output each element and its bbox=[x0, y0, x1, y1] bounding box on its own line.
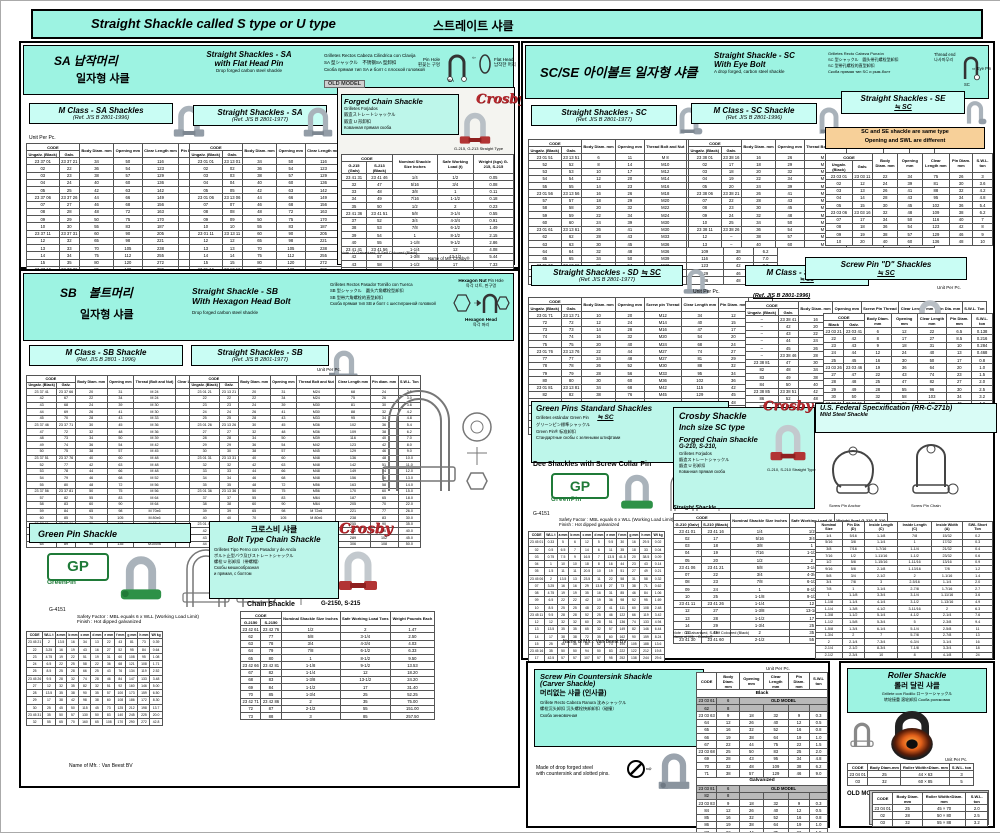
cell: 22 bbox=[220, 395, 238, 402]
cell: 85 bbox=[261, 691, 281, 698]
cell: 72 bbox=[241, 705, 261, 712]
cell: 55 bbox=[75, 495, 107, 502]
cell: 40 bbox=[238, 455, 270, 462]
cell: 67 bbox=[241, 669, 261, 676]
cell: 82 bbox=[261, 669, 281, 676]
cell: 28 bbox=[238, 415, 270, 422]
cell: 12 bbox=[788, 719, 809, 726]
cell: 92 bbox=[115, 682, 126, 689]
usfed-table-wrap: Nominal SizePin Dia (D)Inside Length (C)… bbox=[815, 521, 993, 659]
scse-title: SC/SE 아이볼트 일자형 샤클 bbox=[540, 62, 698, 81]
cell: 0.8 bbox=[972, 357, 993, 364]
cell: 11 bbox=[557, 568, 569, 575]
sb-gp-table-wrap: CODEWLL ta mmb mmc mmd mme mmf mmg mmh m… bbox=[26, 631, 163, 726]
cell: 17 bbox=[721, 161, 741, 168]
cell: 22 bbox=[581, 212, 615, 219]
cell: 109 bbox=[922, 209, 949, 216]
cell: 77 bbox=[261, 633, 281, 640]
cell: 03 bbox=[27, 172, 60, 179]
old-model-tag: OLD MODEL bbox=[324, 80, 365, 88]
cell bbox=[740, 792, 764, 799]
cell: 18 bbox=[963, 645, 993, 652]
cell: 22 bbox=[581, 348, 615, 355]
cell: 95 bbox=[336, 415, 370, 422]
cell: 3/8 bbox=[730, 542, 789, 549]
cell: 5/8 bbox=[281, 633, 340, 640]
cell: 12 bbox=[891, 328, 917, 335]
cell: 9-1/2 bbox=[340, 662, 391, 669]
col-header: Opening mm bbox=[114, 144, 142, 158]
cell: 14 bbox=[222, 252, 242, 259]
col-subheader: Galv. bbox=[852, 161, 872, 173]
cell: 52 bbox=[115, 646, 126, 653]
cell: 31 bbox=[605, 590, 617, 597]
cell: 23 13 51 bbox=[561, 154, 581, 161]
cell: 02 bbox=[222, 165, 242, 172]
cell: 20 bbox=[616, 312, 644, 319]
cell: 40 bbox=[723, 255, 753, 262]
col-header: CODE bbox=[746, 302, 799, 309]
cell: 212 bbox=[126, 704, 138, 711]
cell: 43 bbox=[844, 342, 864, 349]
sa-section: SA 납작머리 일자형 샤클 Straight Shackles - SA wi… bbox=[19, 41, 520, 269]
cell: 43 bbox=[79, 646, 91, 653]
cell: 4.94 bbox=[652, 619, 664, 626]
cell: M24 bbox=[644, 341, 681, 348]
cell: 60 bbox=[270, 455, 297, 462]
cell: 23 41 21 bbox=[701, 564, 730, 571]
cell: M48 bbox=[297, 462, 336, 469]
cell: 16 bbox=[788, 814, 809, 821]
crosby-old: CODENominal Shackle Size InchesSafe Work… bbox=[341, 154, 514, 283]
cell: 45 bbox=[270, 422, 297, 429]
cell: 74 bbox=[917, 371, 947, 378]
col-subheader: Ungalv. (Black) bbox=[529, 147, 562, 154]
countersink-photo-icon bbox=[656, 747, 692, 793]
cell: M 45 bbox=[134, 448, 176, 455]
cell: 07 bbox=[674, 571, 702, 578]
crosby-old: CODENominal Shackle Size InchesSafe Work… bbox=[341, 154, 514, 283]
cell: 17 bbox=[545, 633, 557, 640]
cell: 53 bbox=[27, 468, 57, 475]
cell: 05 bbox=[222, 187, 242, 194]
cell: 13 bbox=[963, 632, 993, 639]
scse-sub1: Straight Shackle - SC bbox=[714, 51, 829, 60]
cell: 17 bbox=[947, 357, 972, 364]
cell: 75 bbox=[277, 216, 305, 223]
col-header: Clear Length mm bbox=[922, 154, 949, 173]
cell: 11 bbox=[593, 575, 605, 582]
cell: 16 bbox=[605, 561, 617, 568]
se-title: Straight Shackles - SE bbox=[844, 94, 962, 103]
cell: 35 bbox=[557, 626, 569, 633]
cell: 82 bbox=[628, 626, 640, 633]
sb-dimension-diagram bbox=[367, 381, 497, 501]
col-header: Body Diam. mm bbox=[242, 144, 276, 158]
cell: 1-1/2 bbox=[281, 684, 340, 691]
cell: 82 bbox=[561, 391, 581, 398]
cell: 66 bbox=[628, 611, 640, 618]
cell: 5.44 bbox=[473, 253, 513, 260]
cell: 3 bbox=[281, 713, 340, 720]
cell: 4.75 bbox=[43, 653, 55, 660]
sa-unit-label: Unit Per Pc. bbox=[29, 135, 56, 141]
cell: 40 bbox=[75, 455, 107, 462]
cell: 2 bbox=[340, 626, 391, 633]
cell: 48 bbox=[740, 763, 764, 770]
cell: 46 bbox=[950, 231, 973, 238]
cell: 205 bbox=[336, 501, 370, 508]
cell: 35.0 bbox=[398, 521, 421, 528]
cell: 18 bbox=[740, 712, 764, 719]
cell: 12 bbox=[581, 539, 593, 546]
bolt-lang-ru2: и прямая, с болтом bbox=[214, 571, 334, 577]
cell: 1-3/4 bbox=[281, 691, 340, 698]
roller-old-box: CODEBody Diam. mmRoller Width×Diam. mmS.… bbox=[869, 790, 989, 825]
sa-kr1: 납작머리 bbox=[74, 54, 118, 68]
cell: 29 bbox=[776, 161, 804, 168]
cell: 23 03 16 bbox=[852, 209, 872, 216]
cell: 39 bbox=[616, 219, 644, 226]
cell: 6.50 bbox=[150, 690, 162, 697]
cell: 46 bbox=[628, 590, 640, 597]
cell: 38 bbox=[950, 209, 973, 216]
cell: 0.3 bbox=[810, 800, 828, 807]
cell: 34 bbox=[107, 395, 134, 402]
cell: 13-1/2 bbox=[340, 676, 391, 683]
cell: 1-1/4 bbox=[730, 600, 789, 607]
cell: 0.18 bbox=[473, 195, 513, 202]
cell: 36 bbox=[242, 165, 276, 172]
cell: OLD MODEL bbox=[740, 697, 828, 704]
cell: 15 bbox=[27, 259, 60, 266]
cell: 36 bbox=[741, 226, 775, 233]
cell: 50 bbox=[778, 381, 798, 388]
col-header: Screw pin Thread bbox=[644, 298, 681, 312]
col-header: WLL t bbox=[545, 532, 557, 539]
cell: 23 41 11 bbox=[674, 600, 702, 607]
cell: 29 bbox=[27, 697, 43, 704]
cell: 23 bbox=[947, 371, 972, 378]
cell: 60 bbox=[27, 515, 57, 522]
cell: 23 41 06 bbox=[674, 564, 702, 571]
sd-title: Straight Shackles - SD ≒ SC bbox=[534, 268, 680, 277]
cell: 1-5/8 bbox=[816, 626, 843, 633]
cell: 17/32 bbox=[931, 539, 962, 546]
cell: 3/8 bbox=[392, 188, 437, 195]
col-header: CODE bbox=[27, 376, 76, 383]
cell: 72 bbox=[561, 319, 581, 326]
cell: 13 bbox=[529, 626, 545, 633]
cell: 7.6 bbox=[963, 612, 993, 619]
cell: 34 bbox=[616, 212, 644, 219]
sb-mclass-ref: (Ref. JIS B 2801 - 1996) bbox=[32, 357, 180, 363]
cell: 116 bbox=[142, 158, 179, 165]
cell: 159 bbox=[138, 690, 150, 697]
cell: 05 bbox=[529, 568, 545, 575]
mclass-sd-ref: (Ref. JIS B 2801-1996) bbox=[753, 293, 810, 299]
cell: 4-1/4 bbox=[864, 599, 897, 606]
cell: 42 bbox=[67, 697, 79, 704]
col-header: CODE bbox=[824, 314, 865, 321]
cell: 57 bbox=[103, 690, 115, 697]
cell: 81 bbox=[126, 639, 138, 646]
cell: 6.2 bbox=[973, 209, 993, 216]
cell: 27 bbox=[701, 607, 730, 614]
cell: 0.02 bbox=[652, 539, 664, 546]
cell: 2-7/8 bbox=[898, 586, 931, 593]
cell: 04 bbox=[190, 179, 223, 186]
cell: 1.0 bbox=[810, 821, 828, 828]
cell: 120 bbox=[114, 259, 142, 266]
col-header: Clear Length mm bbox=[336, 376, 370, 389]
col-header: e mm bbox=[103, 632, 115, 639]
sb-sub1: Straight Shackle - SB bbox=[192, 286, 327, 296]
cell: 1-13/16 bbox=[931, 599, 962, 606]
scse-lang-ru: Скоба прямая тип SC и рым-болт bbox=[828, 69, 938, 75]
cell: 07 bbox=[190, 201, 223, 208]
cell: 57 bbox=[107, 448, 134, 455]
cell: 82 bbox=[746, 366, 779, 373]
cell: 41 bbox=[605, 604, 617, 611]
cell: 69 bbox=[57, 409, 75, 416]
cell: 23 01 61 bbox=[529, 226, 562, 233]
cell: 68 bbox=[277, 201, 305, 208]
cell: 23 13 71 bbox=[561, 312, 581, 319]
col-header: g mm bbox=[628, 532, 640, 539]
cell: 1 bbox=[437, 188, 473, 195]
cell: 1/4 bbox=[816, 533, 843, 540]
cell: 60 bbox=[277, 179, 305, 186]
cell: M 8 bbox=[644, 154, 686, 161]
cell: 44 bbox=[616, 348, 644, 355]
cell: 13.5 bbox=[55, 639, 67, 646]
cell: 77 bbox=[370, 508, 398, 515]
spd-label: Screw Pin "D" Shackles ≒ SC bbox=[805, 257, 967, 280]
cell: 12 bbox=[545, 619, 557, 626]
cell: 73 bbox=[57, 435, 75, 442]
cell: 72 bbox=[107, 482, 134, 489]
cell: 09 bbox=[826, 231, 853, 238]
col-subheader: Ungalv. (Black) bbox=[190, 382, 220, 389]
cell: 95 bbox=[138, 653, 150, 660]
cell: 30 bbox=[59, 223, 79, 230]
cell: 82 bbox=[697, 792, 717, 799]
cell: M22 bbox=[644, 204, 686, 211]
cell: 8.30 bbox=[150, 697, 162, 704]
cell: 1-1/4 bbox=[281, 669, 340, 676]
cell: 5-3/4 bbox=[864, 619, 897, 626]
cell: 36 bbox=[75, 442, 107, 449]
cell: M16 bbox=[644, 326, 681, 333]
cell: 16 bbox=[717, 814, 740, 821]
cell: 1-5/8 bbox=[842, 619, 864, 626]
col-header: Pin Diam. mm bbox=[788, 673, 809, 690]
cell: 22 bbox=[569, 597, 581, 604]
cell: 39 bbox=[270, 402, 297, 409]
cell: 5/16 bbox=[842, 533, 864, 540]
cell: 0.64 bbox=[150, 646, 162, 653]
cell: 83 bbox=[277, 223, 305, 230]
cell: 1.47 bbox=[391, 626, 435, 633]
cell: 35 bbox=[67, 682, 79, 689]
cell: 187 bbox=[336, 495, 370, 502]
cell: 1.5 bbox=[810, 741, 828, 748]
cell: 5-1/4 bbox=[898, 626, 931, 633]
usfed-sub: Mild Steel Shackle bbox=[820, 412, 992, 418]
cell: 1-1/16 bbox=[931, 573, 962, 580]
cell: 98 bbox=[270, 508, 297, 515]
crosby-note: Note : G-Galvanized, S-Self Coloured (Bl… bbox=[341, 251, 417, 255]
cell: 03 bbox=[190, 172, 223, 179]
cell: 41 bbox=[616, 226, 644, 233]
cell: 25 bbox=[27, 668, 43, 675]
roller-table-old-wrap: CODEBody Diam. mmRoller Width×Diam. mmS.… bbox=[872, 792, 988, 827]
gp-logo: GP bbox=[551, 473, 609, 499]
cell: 38 bbox=[788, 763, 809, 770]
cell: 08 bbox=[27, 208, 60, 215]
cell: 24 bbox=[190, 409, 220, 416]
sb-gp-logo-text: GreenPin bbox=[47, 579, 76, 586]
col-subheader: Ungalv. (Black) bbox=[689, 147, 722, 154]
cell: 133 bbox=[138, 675, 150, 682]
cell: 22 bbox=[557, 597, 569, 604]
cell: 6.5 bbox=[947, 328, 972, 335]
cell: 83 bbox=[57, 501, 75, 508]
cell: 16 bbox=[67, 639, 79, 646]
cell: 4.03 bbox=[391, 640, 435, 647]
cell: 55 bbox=[242, 223, 276, 230]
cell: 72 bbox=[270, 482, 297, 489]
col-header: Nominal Shackle Size Inches bbox=[730, 514, 789, 528]
cell: 02 bbox=[674, 535, 702, 542]
scse-eyepin-label: ⇨ Eye Pin bbox=[972, 66, 994, 71]
cell: 42 bbox=[242, 187, 276, 194]
cell: 75 bbox=[270, 488, 297, 495]
cell: 1-3/8 bbox=[281, 676, 340, 683]
cell: 39 bbox=[107, 402, 134, 409]
cell: 83 bbox=[103, 711, 115, 718]
cell: 58 bbox=[617, 575, 628, 582]
cell: 205 bbox=[142, 230, 179, 237]
cell: 20 bbox=[721, 183, 741, 190]
cell: 10 bbox=[581, 312, 615, 319]
cell: 0.8 bbox=[810, 814, 828, 821]
cell: 2.52 bbox=[150, 668, 162, 675]
cell: 10 bbox=[593, 568, 605, 575]
cell: 38 bbox=[91, 697, 103, 704]
cell: 1.08 bbox=[150, 653, 162, 660]
countersink-table-wrap: CODEBody Diam. mmOpening mmClear Length … bbox=[696, 672, 828, 833]
cell: 79 bbox=[261, 647, 281, 654]
cell: M12 bbox=[644, 168, 686, 175]
cell: 22 bbox=[873, 173, 898, 180]
cell: 74 bbox=[561, 333, 581, 340]
cell: 63 bbox=[107, 462, 134, 469]
cell: 2-7/8 bbox=[931, 632, 962, 639]
cell: 25 bbox=[701, 593, 730, 600]
cell: 1-1/8 bbox=[392, 239, 437, 246]
col-header: Pin Diam. mm bbox=[718, 298, 748, 312]
bolt-title: Bolt Type Chain Shackle bbox=[214, 535, 334, 544]
cell: 34 bbox=[220, 475, 238, 482]
bolt-crosby-logo: Crosby bbox=[339, 521, 393, 537]
cell: 28 bbox=[220, 435, 238, 442]
cell: 27 bbox=[605, 582, 617, 589]
cell: 80 bbox=[261, 655, 281, 662]
col-header: b mm bbox=[67, 632, 79, 639]
cell: 41 bbox=[107, 409, 134, 416]
cell: 42.8 bbox=[150, 719, 162, 726]
cell: 16 bbox=[741, 154, 775, 161]
cell: 24 bbox=[220, 409, 238, 416]
se-label: Straight Shackles - SE ≒ SC bbox=[841, 91, 965, 114]
cell: 82 bbox=[917, 378, 947, 385]
sb-sub3: Drop forged carbon steel shackle bbox=[192, 310, 327, 315]
col-subheader: Galv. bbox=[721, 147, 741, 154]
cell: 2 bbox=[898, 573, 931, 580]
cell: 49 bbox=[366, 195, 392, 202]
cell: 100 bbox=[115, 690, 126, 697]
cell: 3-1/4 bbox=[437, 210, 473, 217]
cell: 3.42 bbox=[652, 611, 664, 618]
cell: 7/8 bbox=[730, 578, 789, 585]
cell: 133 bbox=[640, 619, 652, 626]
cell: 142 bbox=[142, 187, 179, 194]
col-header: S.W.L. ton bbox=[950, 764, 973, 771]
usfed-anchor-caption: Screw Pin Anchor bbox=[829, 503, 861, 508]
cell: 96 bbox=[917, 386, 947, 393]
crosby210-notes: Note : G-Galvanised, S-Self Coloured (Bl… bbox=[673, 631, 749, 639]
countersink-arrow: ⇨ bbox=[646, 765, 652, 773]
cell: 8 bbox=[717, 705, 740, 712]
cell: 22.0 bbox=[398, 501, 421, 508]
col-header: CODE bbox=[689, 140, 742, 147]
cell: 70 bbox=[75, 515, 107, 522]
cell: 30 bbox=[891, 357, 917, 364]
cell: 6-1/2 bbox=[340, 647, 391, 654]
cell: 7.0 bbox=[753, 255, 777, 262]
cell: 1/2 bbox=[392, 203, 437, 210]
cell: 14 bbox=[581, 326, 615, 333]
cell: 11 bbox=[963, 626, 993, 633]
col-header: Safe Working Load (t) bbox=[437, 155, 473, 174]
cell: 46 bbox=[238, 475, 270, 482]
cell: 73 bbox=[561, 326, 581, 333]
cell: 112 bbox=[114, 252, 142, 259]
cell: 30 bbox=[238, 422, 270, 429]
cell: 28 bbox=[873, 194, 898, 201]
cell: 23 37 06 bbox=[27, 194, 60, 201]
cell: 30 bbox=[581, 377, 615, 384]
cell: M48 bbox=[297, 455, 336, 462]
cell: 9 bbox=[717, 800, 740, 807]
cell: 18 bbox=[581, 561, 593, 568]
cell: 40 bbox=[763, 807, 788, 814]
cell: 30 bbox=[947, 386, 972, 393]
cell: 12 bbox=[437, 246, 473, 253]
cell: M 42 bbox=[134, 442, 176, 449]
cell: 73 bbox=[529, 326, 562, 333]
sc-label: Straight Shackles - SC (Ref. JIS B 2801-… bbox=[531, 105, 677, 126]
col-header: CODE bbox=[697, 673, 717, 690]
cell: 24 bbox=[616, 319, 644, 326]
cell: 58 bbox=[561, 204, 581, 211]
cell: 29 bbox=[220, 442, 238, 449]
cell: 1-3/8 bbox=[842, 606, 864, 613]
cell: 05 bbox=[689, 183, 722, 190]
roller-lang2: 转轮接重 滚轮卸扣 Скоба роликовая bbox=[848, 697, 986, 703]
